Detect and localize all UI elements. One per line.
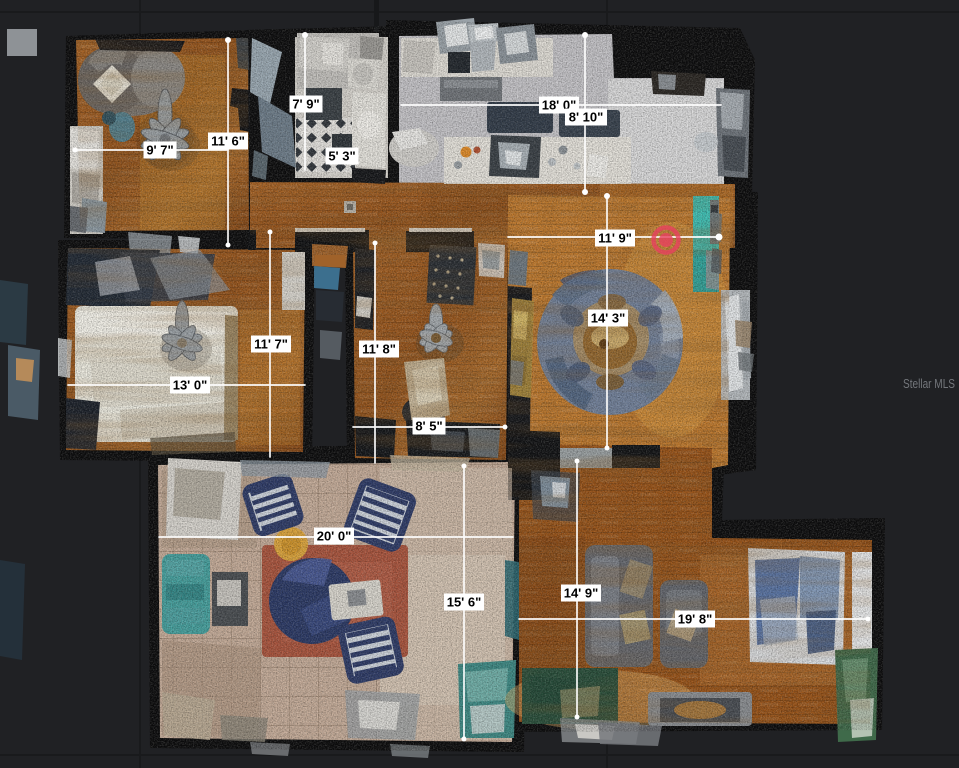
svg-text:8' 10": 8' 10" (569, 110, 604, 125)
svg-text:14' 3": 14' 3" (591, 311, 626, 326)
svg-text:11' 6": 11' 6" (211, 134, 245, 149)
svg-text:15' 6": 15' 6" (447, 595, 482, 610)
svg-text:13' 0": 13' 0" (173, 378, 208, 393)
svg-text:8' 5": 8' 5" (415, 419, 442, 434)
svg-text:20' 0": 20' 0" (317, 529, 352, 544)
svg-text:9' 7": 9' 7" (146, 143, 173, 158)
svg-text:Stellar MLS: Stellar MLS (903, 377, 955, 391)
svg-text:5' 3": 5' 3" (328, 149, 355, 164)
svg-text:11' 7": 11' 7" (254, 337, 288, 352)
svg-text:7' 9": 7' 9" (292, 97, 319, 112)
svg-text:11' 9": 11' 9" (598, 231, 632, 246)
svg-text:11' 8": 11' 8" (362, 342, 396, 357)
svg-text:19' 8": 19' 8" (678, 612, 713, 627)
svg-text:14' 9": 14' 9" (564, 586, 599, 601)
